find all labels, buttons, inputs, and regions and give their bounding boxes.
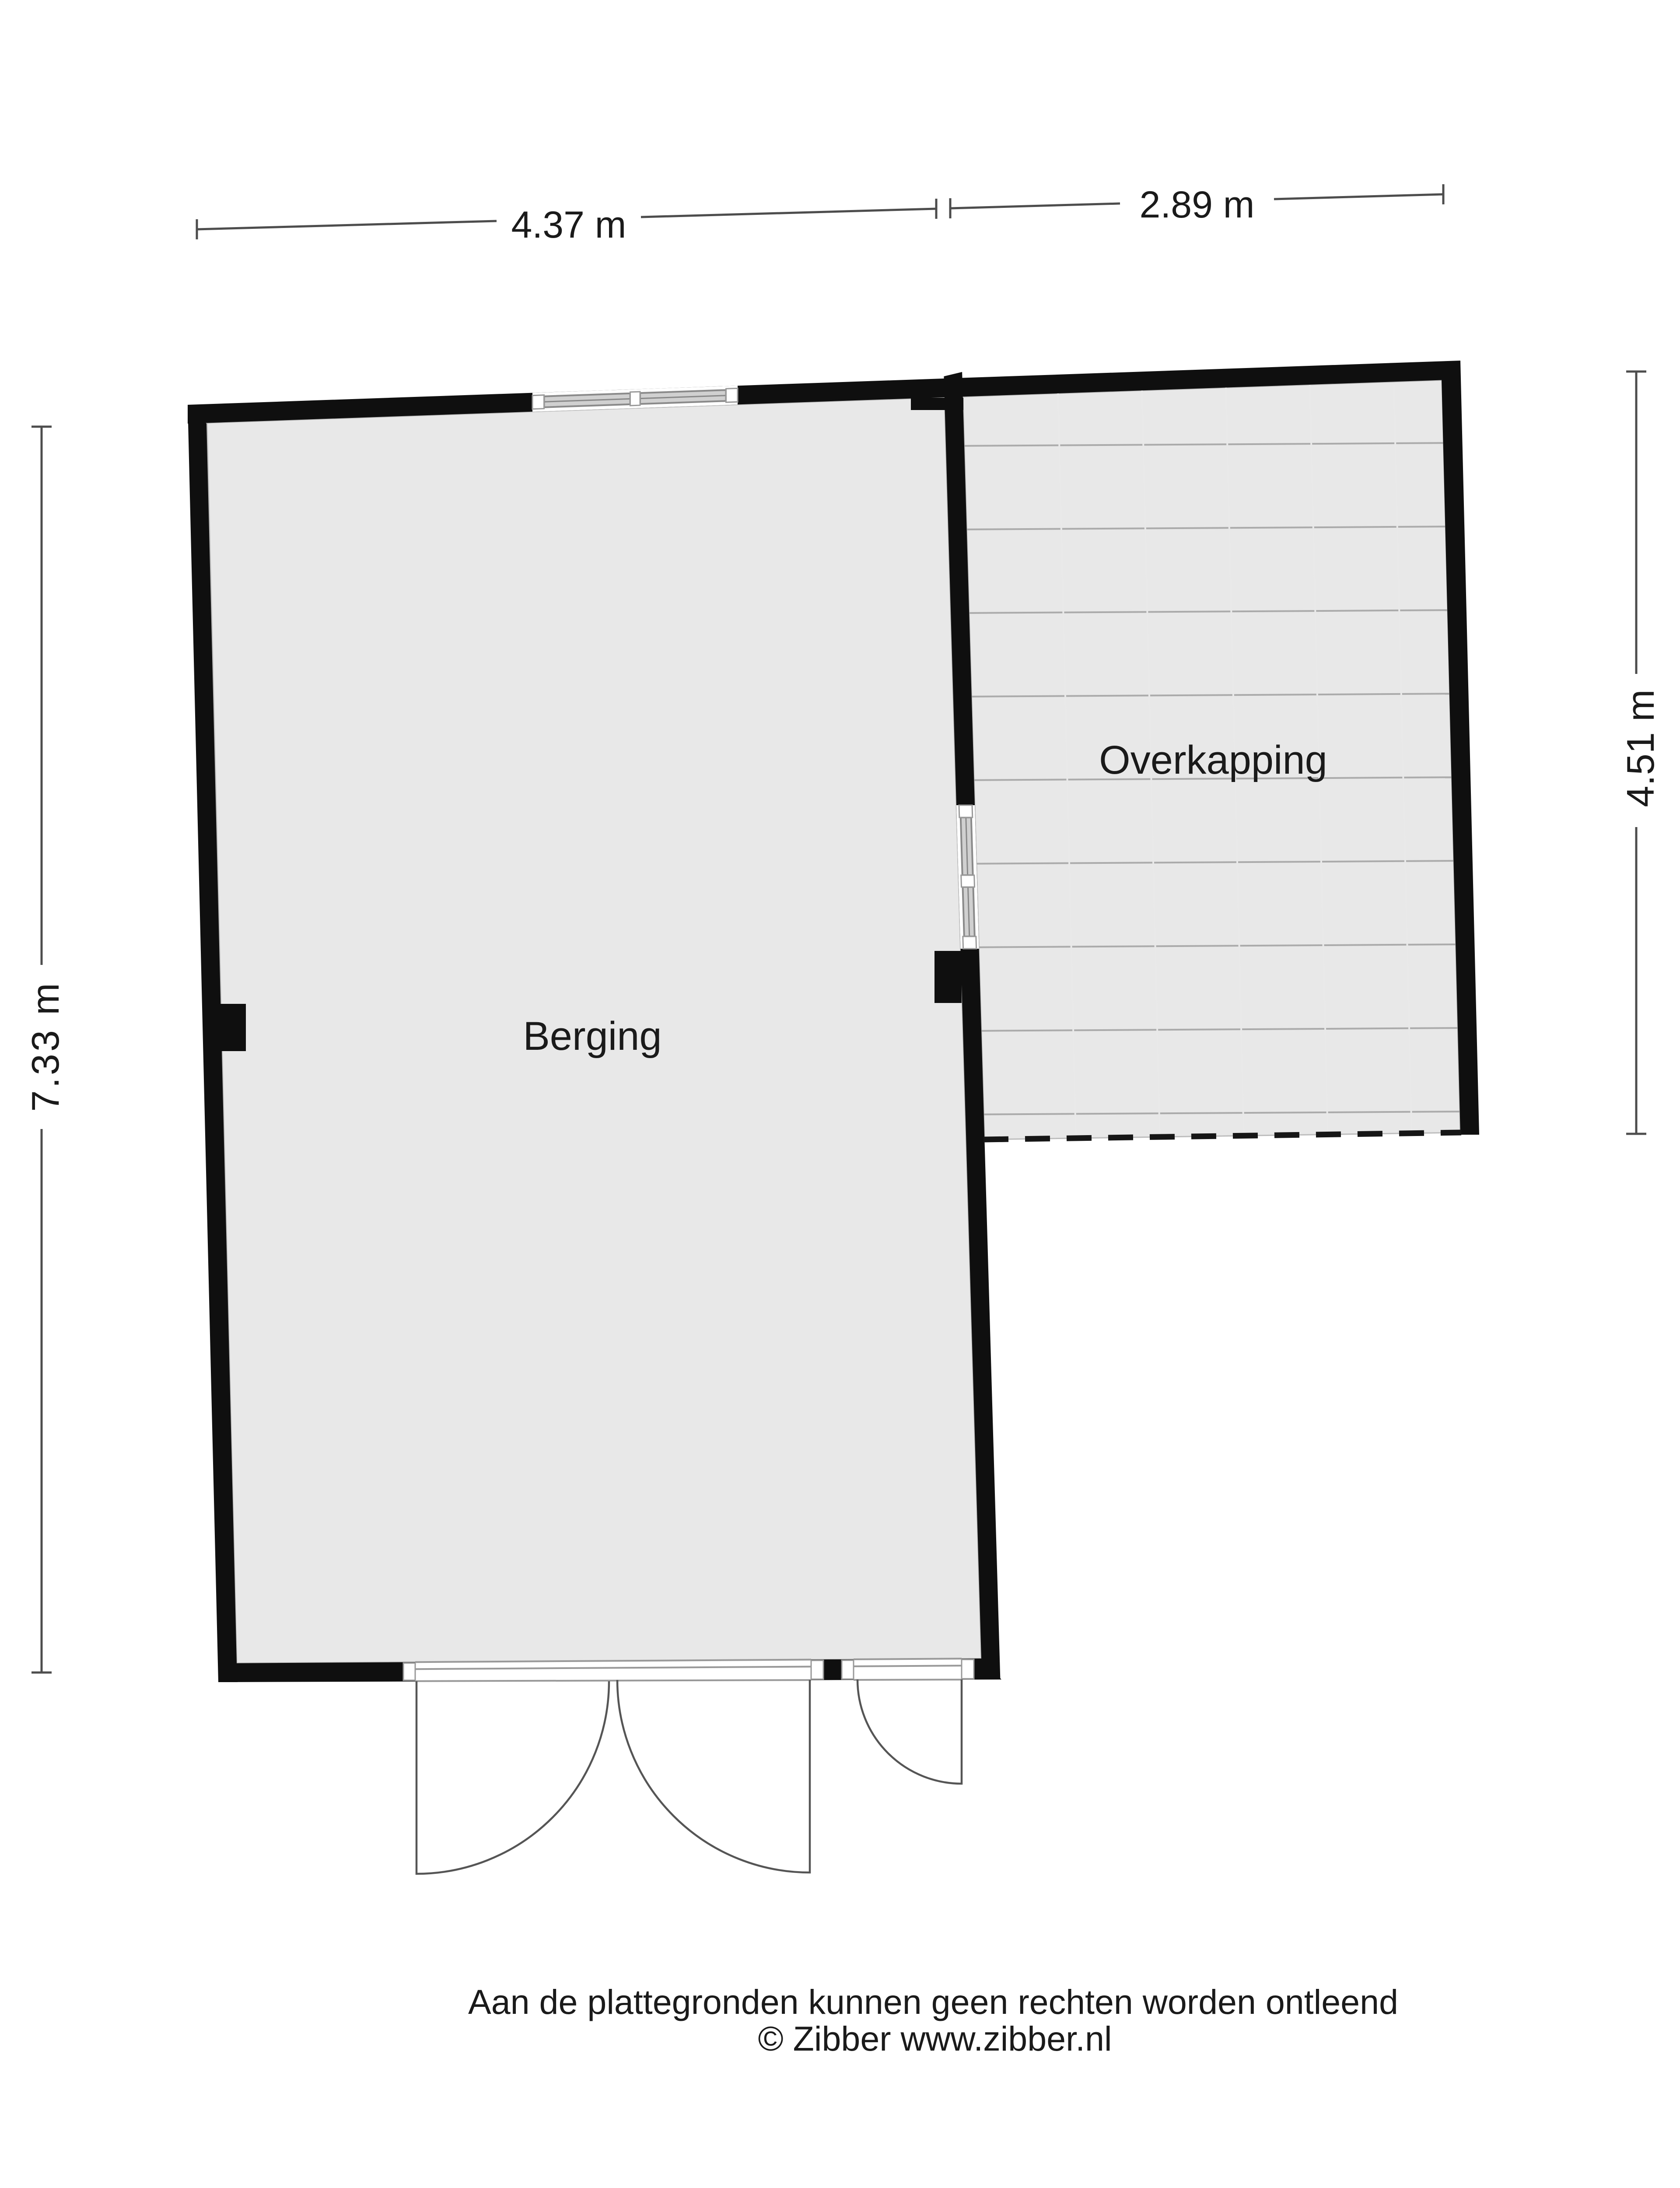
svg-text:© Zibber www.zibber.nl: © Zibber www.zibber.nl <box>758 2019 1112 2058</box>
svg-text:7.33 m: 7.33 m <box>24 981 67 1112</box>
svg-text:Overkapping: Overkapping <box>1099 738 1327 782</box>
svg-text:Berging: Berging <box>523 1014 661 1059</box>
svg-text:4.51 m: 4.51 m <box>1619 689 1662 807</box>
svg-text:Aan de plattegronden kunnen ge: Aan de plattegronden kunnen geen rechten… <box>468 1982 1398 2021</box>
svg-text:2.89 m: 2.89 m <box>1140 184 1255 226</box>
svg-text:4.37 m: 4.37 m <box>511 204 626 246</box>
